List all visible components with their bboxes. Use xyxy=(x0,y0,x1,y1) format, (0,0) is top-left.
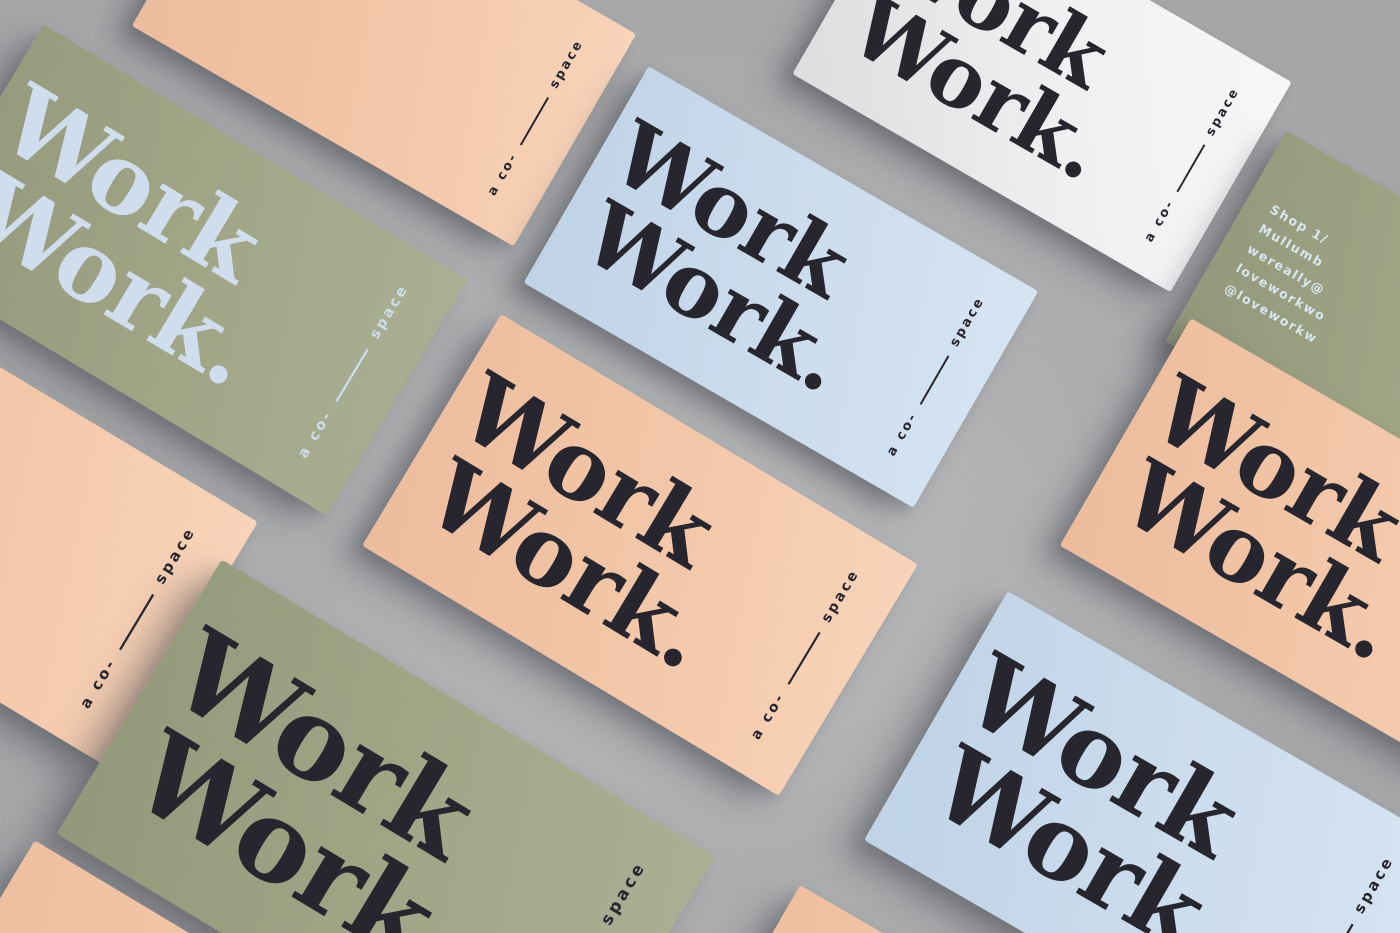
tagline-dash-line xyxy=(119,593,154,649)
tagline-prefix: a co- xyxy=(295,407,337,461)
tagline-prefix: a co- xyxy=(1142,197,1178,245)
tagline-suffix: space xyxy=(547,37,587,91)
tagline-dash-line xyxy=(919,355,949,404)
tagline-suffix: space xyxy=(947,294,988,349)
tagline-suffix: space xyxy=(598,858,651,929)
tagline-prefix: a co- xyxy=(884,410,921,459)
tagline-dash-line xyxy=(1176,144,1205,192)
tagline-dash-line xyxy=(520,96,549,145)
tagline-dash-line xyxy=(787,631,820,684)
tagline-suffix: space xyxy=(819,566,864,626)
wordmark: Work Work. xyxy=(903,641,1297,933)
wordmark: Work Work. xyxy=(825,0,1158,192)
wordmark: Work Work. xyxy=(101,615,540,933)
tagline-dash-line xyxy=(1319,923,1353,933)
tagline-prefix: a co- xyxy=(77,655,120,712)
tagline-prefix: a co- xyxy=(485,150,521,198)
tagline-dash-line xyxy=(335,348,369,402)
wordmark: Work Work. xyxy=(0,72,317,400)
tagline-suffix: space xyxy=(1351,853,1398,917)
wordmark: Work Work. xyxy=(558,109,901,404)
tagline-suffix: space xyxy=(1203,85,1242,139)
wordmark: Work Work. xyxy=(400,361,770,683)
contact-details: Shop 1/ Mullumb wereally@ loveworkwo @lo… xyxy=(1219,199,1367,350)
tagline-prefix: a co- xyxy=(748,690,789,743)
tagline-suffix: space xyxy=(152,524,200,587)
tagline-suffix: space xyxy=(367,282,412,343)
